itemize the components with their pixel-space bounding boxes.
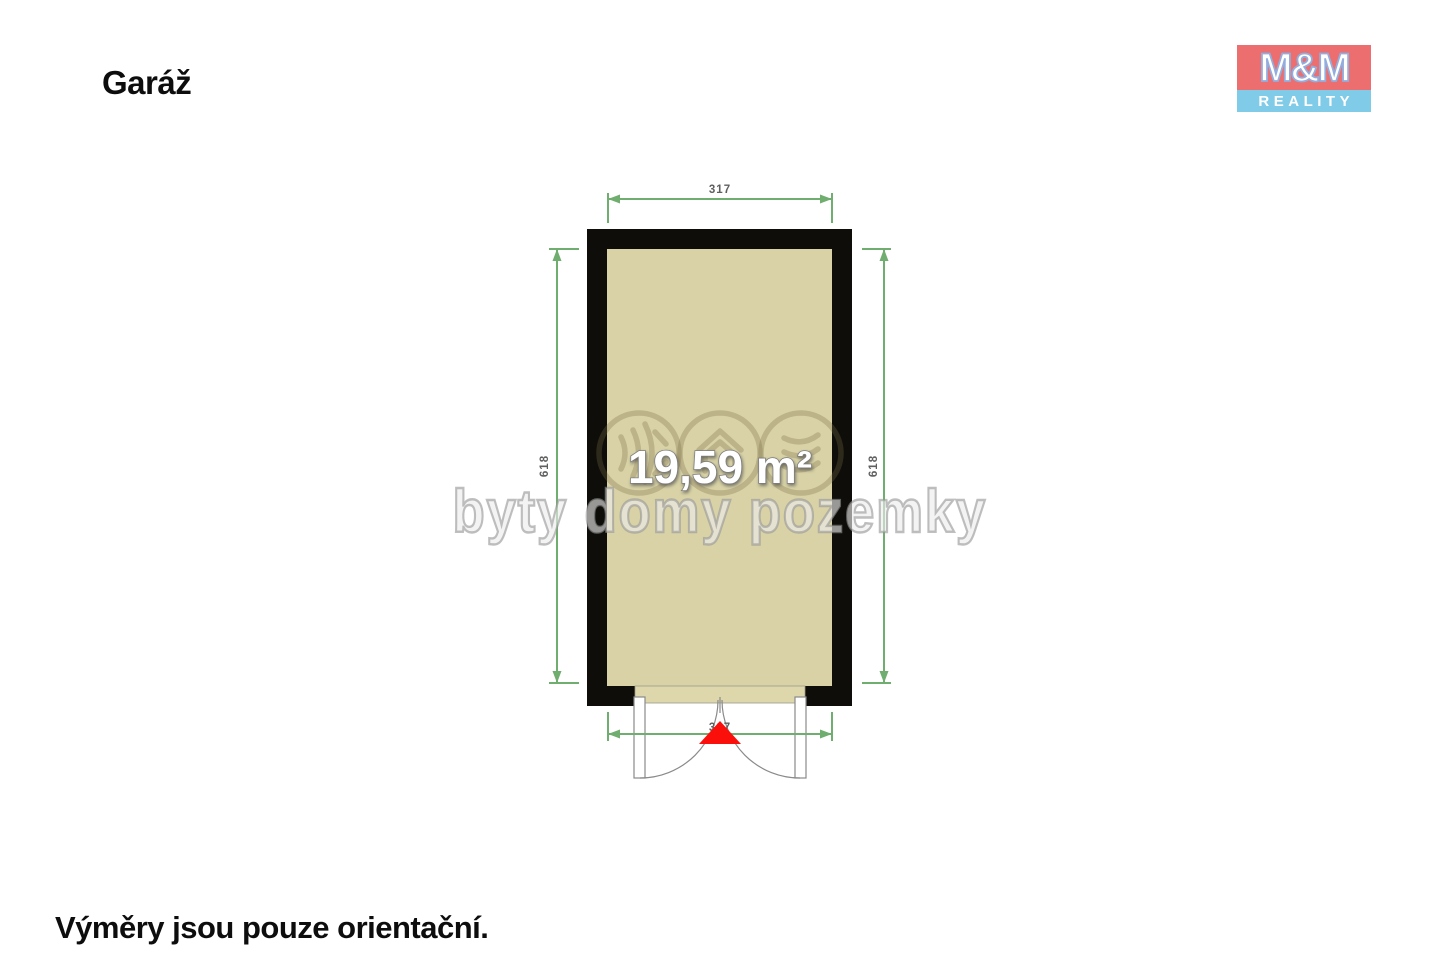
page-title: Garáž xyxy=(102,64,191,102)
entrance-marker xyxy=(699,721,741,744)
dim-left-line xyxy=(549,249,579,683)
arrow xyxy=(553,249,562,261)
floor-plan: 317 317 618 618 19,59 m² xyxy=(500,150,940,830)
dim-left-value: 618 xyxy=(539,455,551,477)
arrow xyxy=(880,671,889,683)
arrow xyxy=(820,195,832,204)
footnote: Výměry jsou pouze orientační. xyxy=(55,910,488,946)
logo-reality-band: REALITY xyxy=(1237,90,1371,112)
logo-top-band: M&M xyxy=(1237,45,1371,90)
arrow xyxy=(880,249,889,261)
arrow xyxy=(608,195,620,204)
door-leaf-right xyxy=(795,697,806,778)
mm-reality-logo: M&M REALITY xyxy=(1237,45,1371,112)
dim-top-value: 317 xyxy=(709,184,731,196)
room-area-label: 19,59 m² xyxy=(628,441,812,493)
arrow xyxy=(553,671,562,683)
dim-right-value: 618 xyxy=(868,455,880,477)
dim-top-line xyxy=(608,193,832,223)
arrow xyxy=(608,730,620,739)
arrow xyxy=(820,730,832,739)
logo-reality-text: REALITY xyxy=(1254,94,1354,109)
door-leaf-left xyxy=(634,697,645,778)
logo-mm-text: M&M xyxy=(1259,48,1349,88)
